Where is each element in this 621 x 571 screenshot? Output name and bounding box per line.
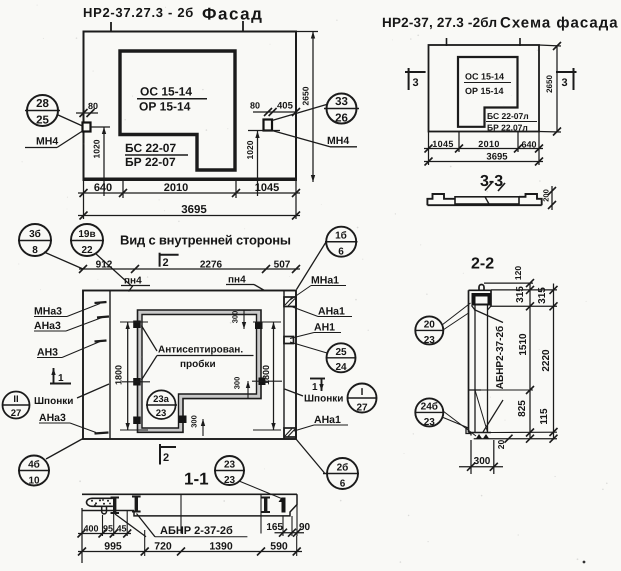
svg-text:315: 315 (515, 286, 526, 303)
svg-text:300: 300 (231, 311, 240, 324)
svg-text:120: 120 (513, 266, 523, 280)
svg-text:1020: 1020 (92, 139, 102, 158)
svg-text:Схема фасада: Схема фасада (500, 15, 619, 32)
svg-text:405: 405 (277, 101, 294, 112)
svg-text:ОС 15-14: ОС 15-14 (140, 85, 192, 99)
svg-text:1: 1 (58, 373, 64, 384)
svg-text:I: I (361, 387, 364, 398)
svg-text:995: 995 (104, 541, 122, 553)
svg-text:24б: 24б (421, 402, 438, 413)
svg-text:ОС 15-14: ОС 15-14 (465, 72, 504, 82)
svg-text:115: 115 (539, 408, 550, 425)
svg-text:45: 45 (116, 524, 126, 534)
svg-text:АБНР 2-37-2б: АБНР 2-37-2б (160, 525, 233, 537)
svg-text:912: 912 (96, 260, 113, 271)
svg-text:2-2: 2-2 (471, 256, 494, 273)
svg-text:20: 20 (496, 440, 506, 450)
svg-text:90: 90 (299, 522, 311, 533)
svg-text:БС 22-07: БС 22-07 (125, 141, 176, 155)
svg-text:23: 23 (424, 417, 436, 428)
svg-text:Фасад: Фасад (202, 5, 263, 24)
svg-text:3: 3 (413, 77, 419, 89)
svg-text:27: 27 (11, 408, 22, 419)
svg-text:2б: 2б (337, 463, 349, 474)
svg-text:825: 825 (517, 400, 528, 417)
svg-text:Вид с внутренней стороны: Вид с внутренней стороны (120, 233, 291, 248)
svg-text:МН4: МН4 (36, 136, 58, 148)
svg-text:24: 24 (335, 362, 347, 373)
svg-text:25: 25 (335, 347, 347, 358)
svg-text:2010: 2010 (164, 182, 188, 194)
svg-text:II: II (13, 394, 18, 405)
svg-text:27: 27 (356, 403, 368, 414)
svg-text:1б: 1б (335, 231, 347, 242)
svg-text:НР2-37, 27.3 -2бл: НР2-37, 27.3 -2бл (382, 15, 497, 30)
svg-text:20: 20 (424, 320, 436, 331)
svg-text:3б: 3б (29, 229, 41, 240)
svg-text:1020: 1020 (245, 140, 255, 159)
svg-text:БС 22-07л: БС 22-07л (487, 111, 529, 121)
svg-text:23: 23 (224, 475, 236, 486)
svg-text:3695: 3695 (181, 204, 207, 216)
svg-text:1390: 1390 (209, 541, 233, 553)
svg-text:165: 165 (266, 522, 283, 533)
svg-text:28: 28 (36, 98, 49, 110)
svg-text:400: 400 (83, 524, 98, 534)
svg-text:ОР 15-14: ОР 15-14 (139, 100, 191, 114)
svg-text:1: 1 (312, 382, 318, 393)
svg-text:23: 23 (156, 408, 167, 419)
svg-text:2: 2 (163, 257, 169, 269)
svg-text:ОР 15-14: ОР 15-14 (465, 86, 504, 96)
svg-text:6: 6 (340, 479, 346, 490)
svg-text:23а: 23а (153, 394, 170, 405)
svg-text:АН1: АН1 (314, 322, 335, 334)
svg-text:25: 25 (36, 115, 49, 127)
svg-text:300: 300 (474, 456, 491, 467)
svg-text:Шпонки: Шпонки (304, 394, 343, 405)
svg-text:2276: 2276 (200, 260, 223, 271)
svg-text:1-1: 1-1 (184, 470, 209, 489)
svg-text:пробки: пробки (180, 359, 216, 370)
svg-text:1510: 1510 (518, 333, 529, 356)
svg-text:1045: 1045 (432, 139, 454, 149)
svg-text:80: 80 (250, 101, 260, 111)
svg-text:22: 22 (81, 245, 93, 256)
svg-text:АН3: АН3 (37, 347, 58, 359)
svg-text:2220: 2220 (541, 349, 552, 372)
svg-text:МНа1: МНа1 (311, 275, 339, 287)
svg-text:10: 10 (28, 476, 40, 487)
svg-text:АНа1: АНа1 (314, 414, 341, 426)
svg-text:АНа1: АНа1 (318, 306, 345, 318)
svg-text:590: 590 (270, 541, 288, 553)
svg-text:8: 8 (32, 245, 38, 256)
svg-text:95: 95 (103, 524, 113, 534)
svg-text:2650: 2650 (301, 86, 311, 105)
svg-text:19в: 19в (78, 229, 95, 240)
svg-text:640: 640 (94, 182, 112, 194)
svg-text:Шпонки: Шпонки (34, 396, 73, 407)
svg-text:3: 3 (562, 77, 568, 89)
svg-text:26: 26 (335, 113, 348, 125)
svg-text:БР 22-07: БР 22-07 (125, 155, 176, 169)
svg-text:23: 23 (224, 460, 236, 471)
svg-text:МНа3: МНа3 (34, 306, 62, 318)
svg-text:1800: 1800 (261, 365, 271, 385)
svg-text:33: 33 (335, 96, 348, 108)
svg-text:АНа3: АНа3 (34, 320, 61, 332)
svg-text:2: 2 (163, 452, 169, 464)
svg-text:БР 22.07л: БР 22.07л (487, 123, 528, 133)
svg-text:4б: 4б (28, 460, 40, 471)
svg-text:2010: 2010 (478, 139, 500, 149)
svg-text:720: 720 (154, 541, 172, 553)
svg-text:300: 300 (190, 415, 199, 428)
svg-text:МН4: МН4 (327, 135, 349, 147)
svg-text:300: 300 (233, 377, 242, 390)
svg-text:2650: 2650 (545, 75, 554, 93)
svg-text:315: 315 (537, 287, 548, 304)
svg-text:НР2-37.27.3 - 2б: НР2-37.27.3 - 2б (83, 5, 194, 20)
svg-text:АНа3: АНа3 (39, 412, 66, 424)
svg-text:3695: 3695 (486, 152, 508, 163)
svg-text:200: 200 (542, 189, 551, 202)
svg-text:3-3: 3-3 (480, 173, 503, 190)
svg-text:1045: 1045 (255, 182, 279, 194)
svg-text:Антисептирован.: Антисептирован. (158, 345, 243, 356)
svg-text:507: 507 (274, 260, 291, 271)
svg-text:23: 23 (424, 335, 436, 346)
svg-text:АБНР2-37-2б: АБНР2-37-2б (495, 326, 506, 389)
svg-text:640: 640 (521, 140, 536, 150)
svg-text:6: 6 (338, 247, 344, 258)
